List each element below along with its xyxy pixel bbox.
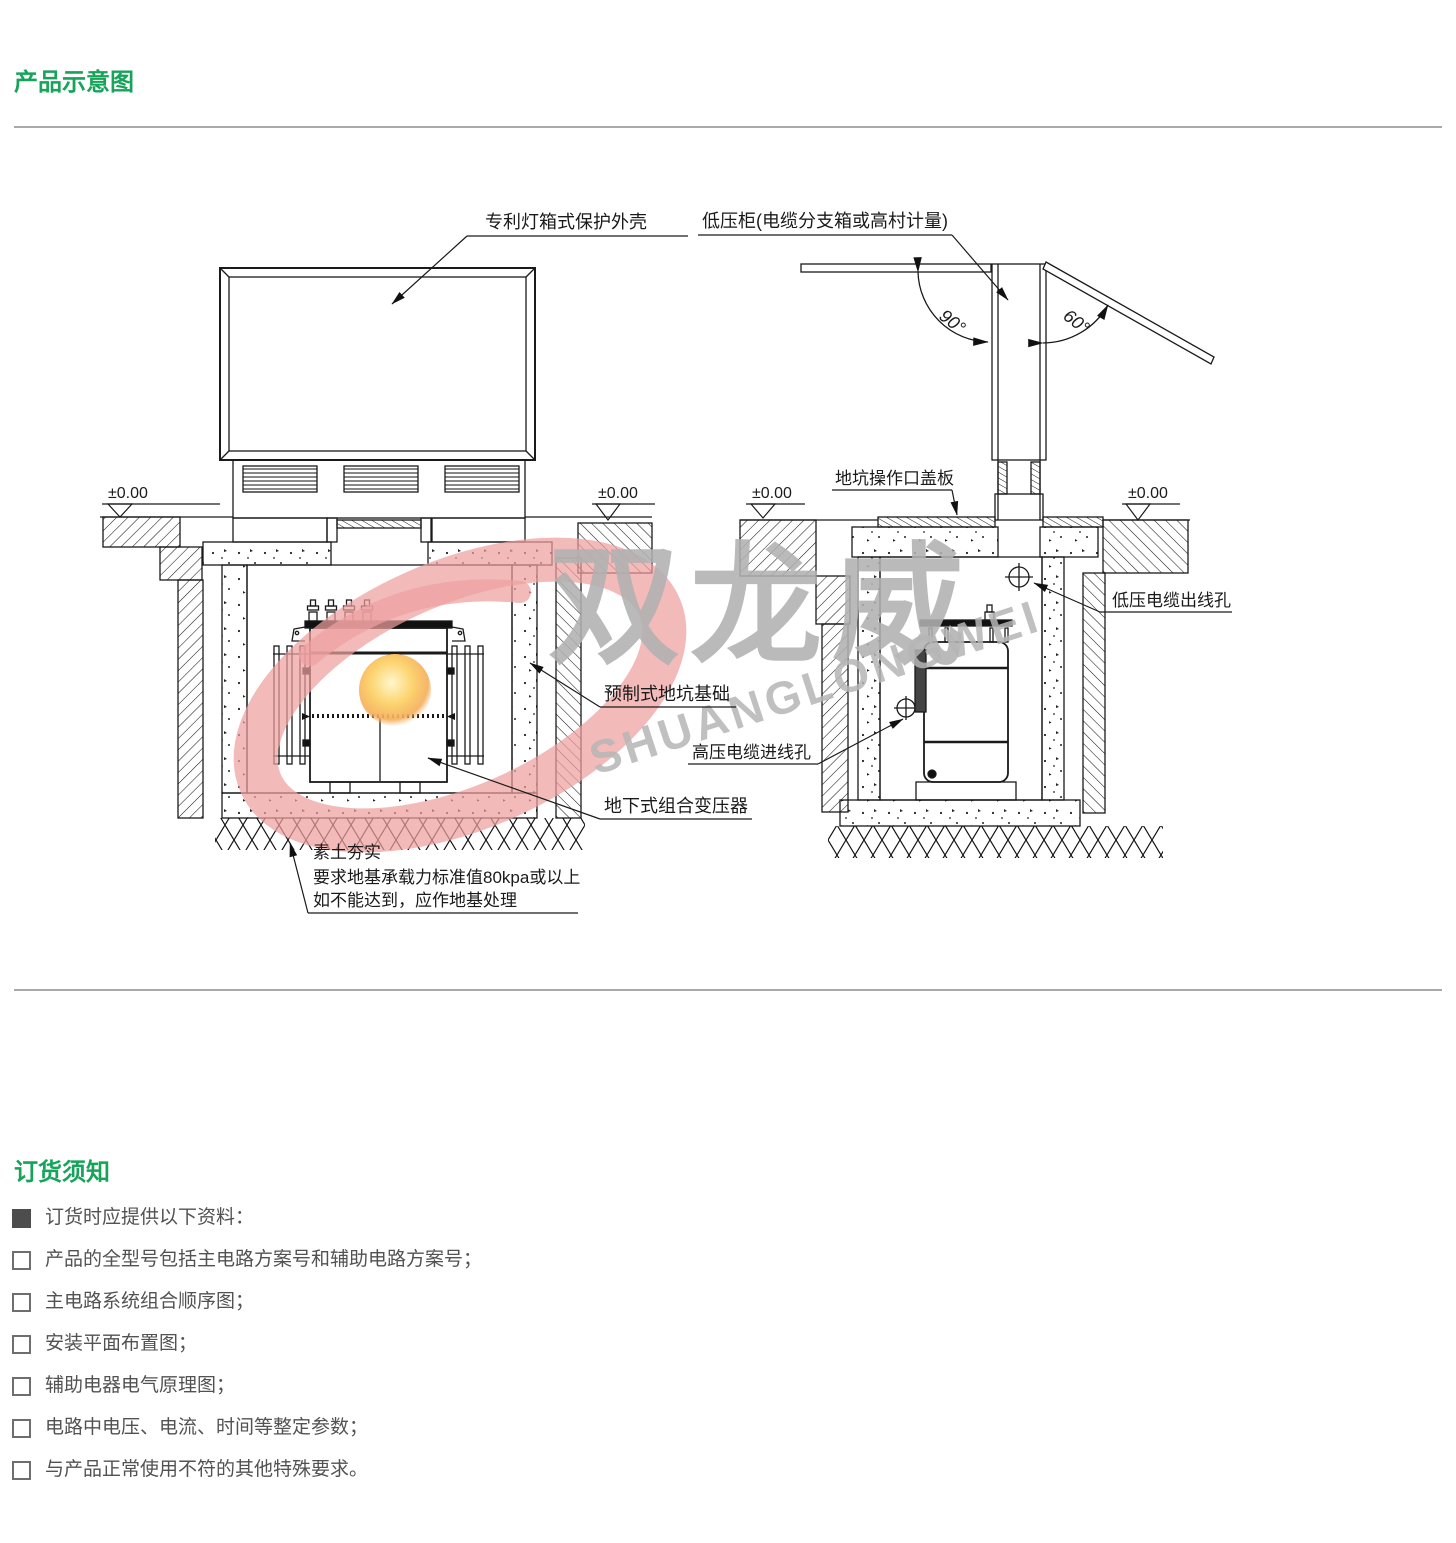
label-underground-transformer: 地下式组合变压器 (604, 796, 748, 816)
svg-text:±0.00: ±0.00 (1128, 485, 1168, 502)
order-note-text: 产品的全型号包括主电路方案号和辅助电路方案号； (45, 1250, 482, 1270)
empty-square-bullet-icon (12, 1377, 31, 1396)
empty-square-bullet-icon (12, 1461, 31, 1480)
watermark-logo-ball (359, 654, 431, 726)
empty-square-bullet-icon (12, 1419, 31, 1438)
order-note-item: 与产品正常使用不符的其他特殊要求。 (12, 1460, 482, 1480)
left-earth-hatch-left (103, 517, 203, 818)
product-schematic-drawing: 双龙威 SHUANGLONGWEI 专利灯箱式保护外壳 预制式地坑基础 地下式组… (0, 0, 1456, 1010)
level-marker: ±0.00 (746, 485, 805, 518)
soil-note-line1: 素土夯实 (313, 843, 381, 862)
order-note-text: 电路中电压、电流、时间等整定参数； (45, 1418, 368, 1438)
divider-middle (14, 989, 1442, 991)
label-hv-inlet: 高压电缆进线孔 (692, 743, 811, 762)
level-marker: ±0.00 (1122, 485, 1180, 520)
left-base (233, 518, 525, 542)
right-lv-cabinet (801, 262, 1214, 460)
order-note-text: 安装平面布置图； (45, 1334, 197, 1354)
order-note-text: 订货时应提供以下资料： (45, 1208, 254, 1228)
soil-note-line3: 如不能达到，应作地基处理 (313, 891, 517, 910)
order-note-item: 辅助电器电气原理图； (12, 1376, 482, 1396)
label-cover-plate: 地坑操作口盖板 (835, 469, 954, 488)
right-earth-hatch-right (1083, 520, 1188, 813)
pit-cover-plate (878, 517, 995, 527)
order-note-text: 辅助电器电气原理图； (45, 1376, 235, 1396)
order-note-item: 产品的全型号包括主电路方案号和辅助电路方案号； (12, 1250, 482, 1270)
order-note-item: 安装平面布置图； (12, 1334, 482, 1354)
svg-text:±0.00: ±0.00 (598, 485, 638, 502)
empty-square-bullet-icon (12, 1335, 31, 1354)
right-cabinet-stem (995, 460, 1043, 520)
order-note-item: 主电路系统组合顺序图； (12, 1292, 482, 1312)
order-note-text: 主电路系统组合顺序图； (45, 1292, 254, 1312)
svg-text:±0.00: ±0.00 (752, 485, 792, 502)
angle-90-label: 90° (936, 305, 970, 338)
right-soil-band (828, 826, 1163, 858)
order-note-intro: 订货时应提供以下资料： (12, 1208, 482, 1228)
soil-note-line2: 要求地基承载力标准值80kpa或以上 (313, 868, 580, 887)
svg-text:±0.00: ±0.00 (108, 485, 148, 502)
filled-square-bullet-icon (12, 1209, 31, 1228)
level-marker: ±0.00 (592, 485, 655, 520)
section-title-order: 订货须知 (14, 1152, 110, 1187)
label-lv-cabinet: 低压柜(电缆分支箱或高村计量) (702, 211, 948, 231)
angle-60-label: 60° (1060, 305, 1094, 338)
page: 产品示意图 (0, 0, 1456, 1543)
label-pit-foundation: 预制式地坑基础 (604, 684, 730, 704)
empty-square-bullet-icon (12, 1251, 31, 1270)
soil-note: 素土夯实 要求地基承载力标准值80kpa或以上 如不能达到，应作地基处理 (313, 843, 580, 910)
order-note-item: 电路中电压、电流、时间等整定参数； (12, 1418, 482, 1438)
empty-square-bullet-icon (12, 1293, 31, 1312)
left-vent-section (233, 460, 525, 518)
order-note-text: 与产品正常使用不符的其他特殊要求。 (45, 1460, 368, 1480)
order-notes-list: 订货时应提供以下资料： 产品的全型号包括主电路方案号和辅助电路方案号； 主电路系… (12, 1208, 482, 1502)
level-marker: ±0.00 (102, 485, 220, 517)
label-protective-shell: 专利灯箱式保护外壳 (485, 212, 647, 232)
left-light-box (220, 268, 535, 460)
lv-cable-outlet-hole (1005, 563, 1033, 591)
label-lv-outlet: 低压电缆出线孔 (1112, 591, 1231, 610)
